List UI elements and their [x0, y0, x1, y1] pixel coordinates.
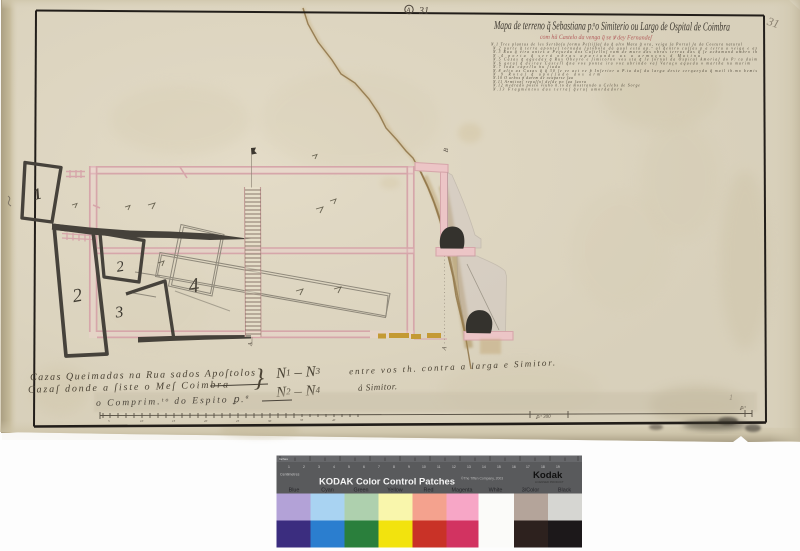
- svg-text:ꝑ.ᵃ: ꝑ.ᵃ: [739, 406, 746, 411]
- svg-text:4: 4: [333, 465, 335, 469]
- svg-text:N.13 Fragmentos das terraſ q̃: N.13 Fragmentos das terraſ q̃eraſ amorda…: [492, 87, 622, 91]
- svg-text:9: 9: [408, 465, 410, 469]
- svg-text:35: 35: [300, 418, 304, 422]
- svg-text:White: White: [489, 488, 503, 494]
- svg-text:13: 13: [467, 465, 471, 469]
- svg-text:com hũ Castelo da venga q̃ se: com hũ Castelo da venga q̃ se ꝟ dey Fern…: [540, 34, 653, 42]
- svg-text:7: 7: [378, 465, 380, 469]
- svg-text:20: 20: [204, 419, 208, 423]
- svg-text:LICENSED PRODUCT: LICENSED PRODUCT: [535, 480, 564, 484]
- svg-text:Centimetres: Centimetres: [280, 473, 300, 477]
- svg-text:Red: Red: [424, 488, 434, 494]
- svg-text:Blue: Blue: [289, 488, 300, 494]
- svg-text:N1 – N3: N1 – N3: [275, 364, 321, 382]
- svg-text:5: 5: [348, 465, 350, 469]
- svg-text:14: 14: [482, 465, 486, 469]
- svg-text:KODAK Color Control Patches: KODAK Color Control Patches: [319, 476, 455, 487]
- svg-text:31: 31: [418, 6, 429, 17]
- svg-text:Green: Green: [354, 488, 369, 494]
- svg-text:Black: Black: [558, 488, 571, 494]
- svg-text:6: 6: [363, 465, 365, 469]
- svg-text:Magenta: Magenta: [452, 488, 473, 494]
- svg-text:17: 17: [526, 465, 530, 469]
- svg-text:40: 40: [332, 418, 336, 422]
- svg-text:15: 15: [497, 465, 501, 469]
- svg-text:©The Tiffen Company, 2003: ©The Tiffen Company, 2003: [461, 477, 503, 481]
- svg-text:}: }: [254, 365, 264, 392]
- svg-text:3: 3: [318, 465, 320, 469]
- svg-text:Mapa de terreno q̃ Sebastiana: Mapa de terreno q̃ Sebastiana p.ͣ o Simi…: [493, 18, 730, 34]
- svg-text:2: 2: [303, 465, 305, 469]
- svg-text:1: 1: [288, 465, 290, 469]
- svg-text:30: 30: [268, 419, 272, 423]
- svg-text:Inches: Inches: [279, 457, 288, 461]
- svg-text:10: 10: [140, 419, 144, 423]
- svg-text:15: 15: [172, 419, 176, 423]
- svg-text:ꝑ.ᵒ 300: ꝑ.ᵒ 300: [535, 415, 551, 420]
- svg-text:8: 8: [393, 465, 395, 469]
- svg-text:a̓ Simitor.: a̓ Simitor.: [358, 381, 398, 393]
- svg-text:19: 19: [556, 465, 560, 469]
- svg-text:3/Color: 3/Color: [522, 488, 540, 494]
- svg-text:11: 11: [437, 465, 441, 469]
- svg-text:A: A: [248, 342, 254, 347]
- svg-text:Yellow: Yellow: [387, 488, 402, 494]
- svg-text:18: 18: [541, 465, 545, 469]
- svg-text:16: 16: [512, 465, 516, 469]
- svg-text:A: A: [405, 6, 411, 14]
- svg-text:10: 10: [422, 465, 426, 469]
- svg-text:25: 25: [236, 419, 240, 423]
- svg-text:Cyan: Cyan: [321, 488, 334, 494]
- svg-text:12: 12: [452, 465, 456, 469]
